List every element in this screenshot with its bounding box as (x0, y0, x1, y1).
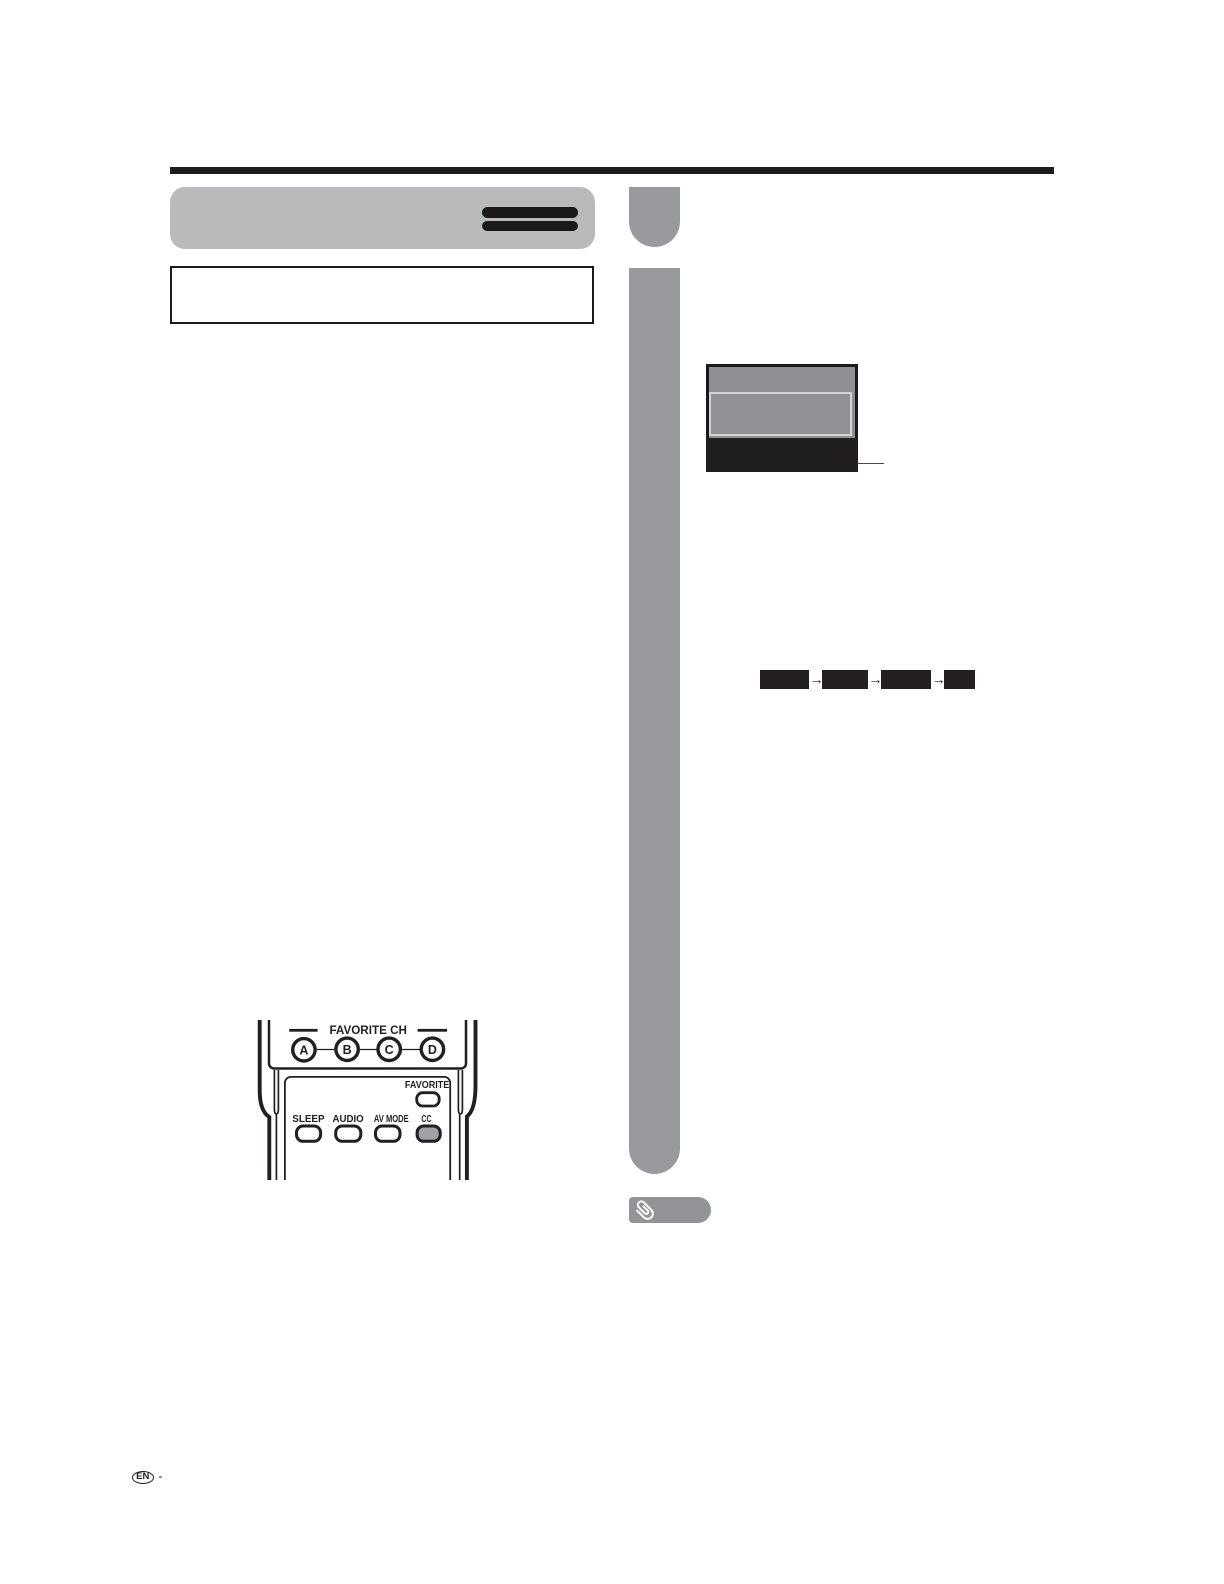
svg-text:AV MODE: AV MODE (374, 1113, 409, 1124)
svg-text:CC: CC (421, 1113, 432, 1124)
svg-text:B: B (343, 1042, 352, 1056)
svg-text:FAVORITE CH: FAVORITE CH (329, 1023, 407, 1037)
svg-text:FAVORITE: FAVORITE (405, 1080, 450, 1091)
svg-text:C: C (385, 1042, 394, 1056)
svg-text:SLEEP: SLEEP (292, 1113, 324, 1124)
svg-text:A: A (299, 1043, 308, 1057)
svg-text:D: D (428, 1042, 437, 1056)
svg-text:AUDIO: AUDIO (332, 1113, 363, 1124)
